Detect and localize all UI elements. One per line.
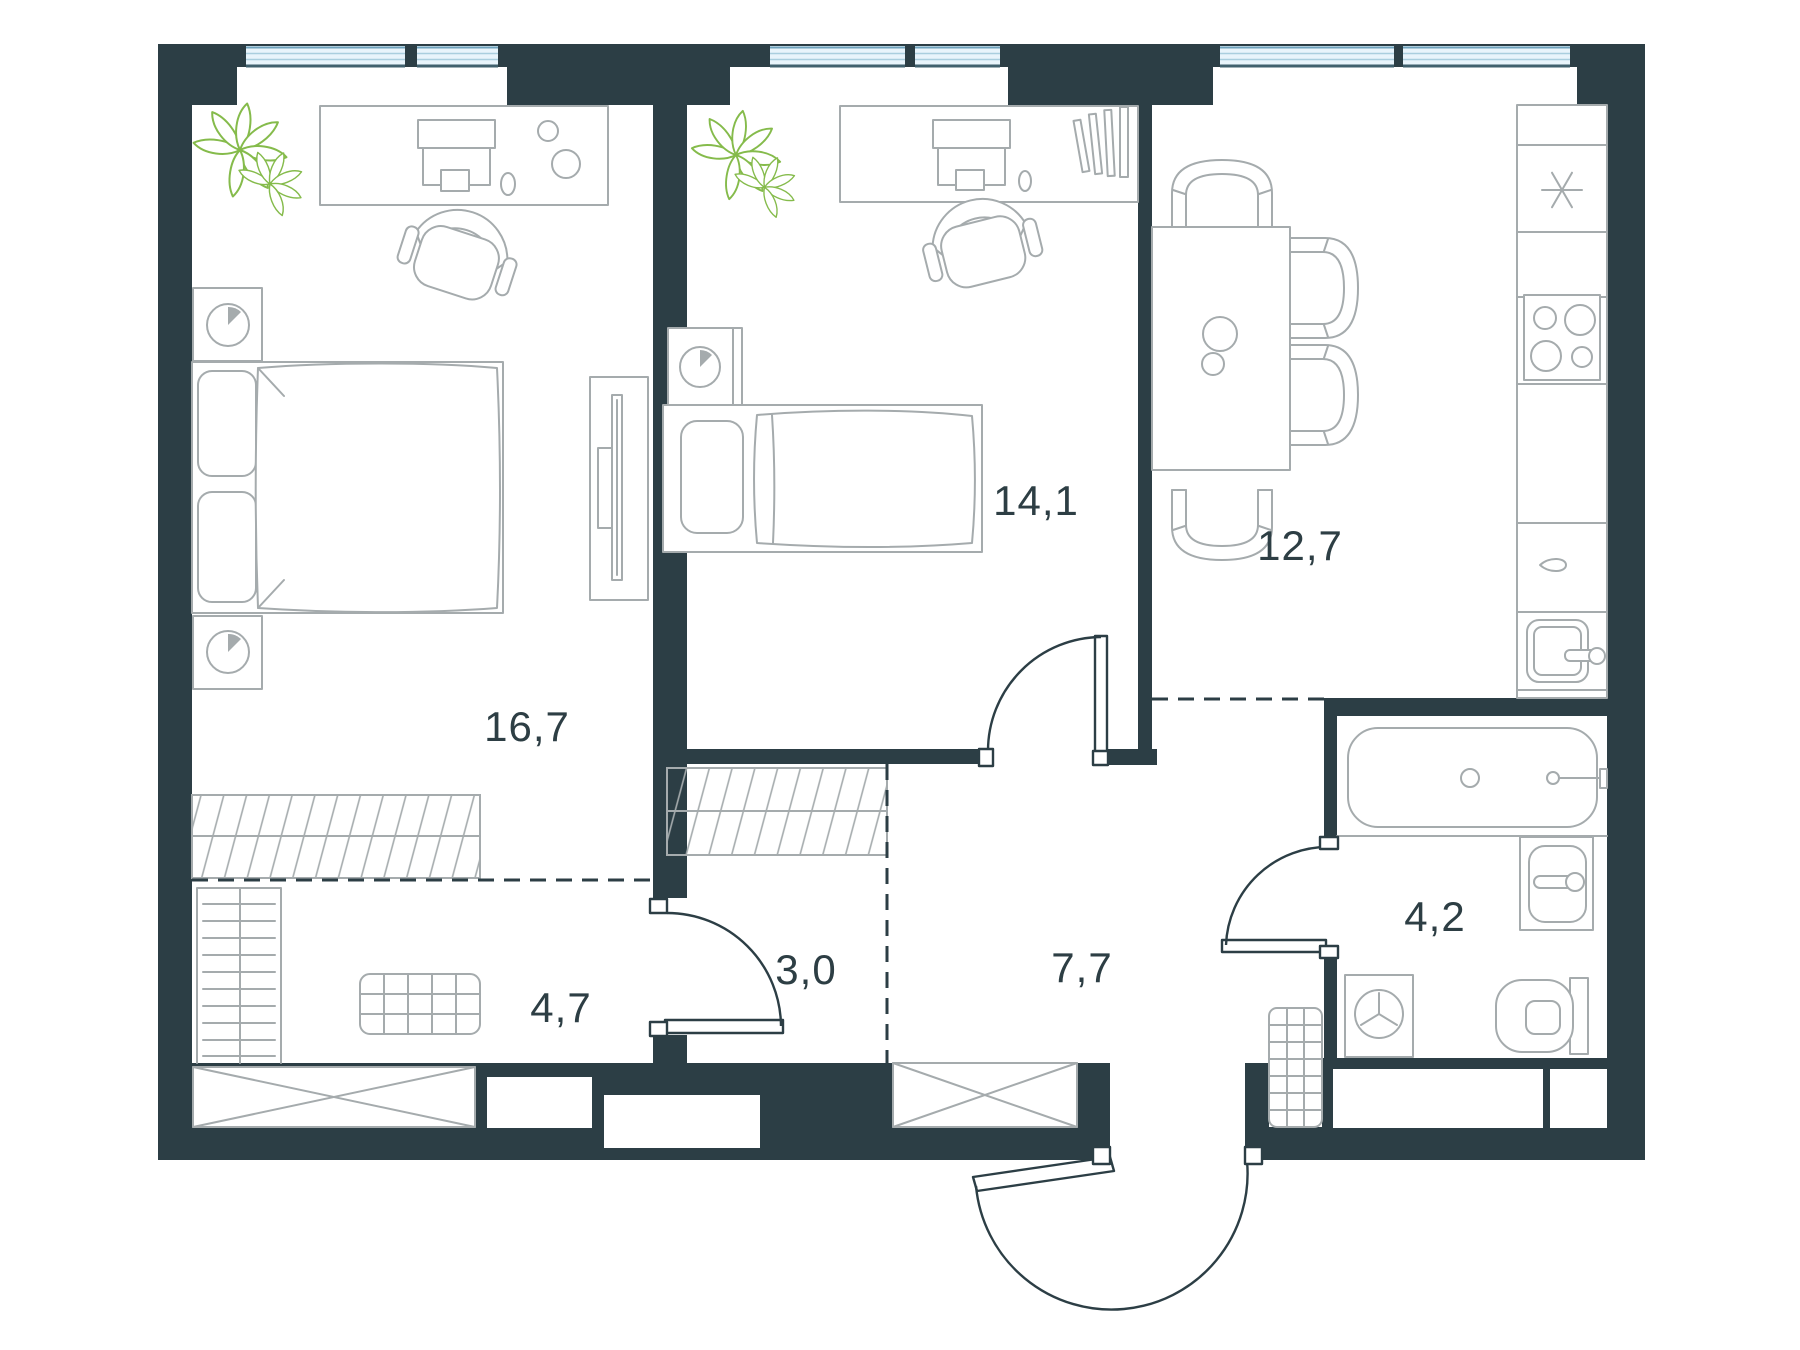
wall-bathroom-left-upper xyxy=(1324,716,1337,848)
stove-burners xyxy=(1524,295,1600,380)
wardrobe-zone-door xyxy=(650,899,783,1036)
area-label-hallway: 7,7 xyxy=(1051,944,1112,991)
monitor xyxy=(418,120,495,148)
niche-bottom-1 xyxy=(487,1077,592,1128)
door-jamb xyxy=(650,899,667,913)
area-label-bedroom-large: 16,7 xyxy=(484,703,570,750)
wall-corridor-stub xyxy=(653,1035,687,1063)
window-recess-kitchen xyxy=(1213,67,1577,105)
window-5 xyxy=(1220,46,1394,67)
window-6 xyxy=(1403,46,1570,67)
sink-tap xyxy=(1589,648,1605,664)
kitchen-counter xyxy=(1517,105,1607,698)
kitchen-furniture xyxy=(1152,105,1607,698)
niche-bathroom-bottom-2 xyxy=(1550,1069,1607,1128)
window-2 xyxy=(417,46,498,67)
bedroom-large-furniture xyxy=(192,102,648,878)
door-jamb xyxy=(1093,751,1108,765)
door-jamb xyxy=(1245,1147,1262,1164)
door-swing-arc xyxy=(667,913,781,1026)
bathroom-door xyxy=(1222,837,1338,958)
window-1 xyxy=(246,46,405,67)
area-label-bathroom: 4,2 xyxy=(1404,893,1465,940)
monitor xyxy=(933,120,1010,148)
door-swing-arc xyxy=(988,637,1101,751)
pillow xyxy=(198,492,256,602)
wall-bedroom2-bottom xyxy=(653,749,987,764)
wall-kitchen-partition xyxy=(1138,105,1152,765)
ladder-shelf xyxy=(197,888,281,1063)
pillow xyxy=(198,371,256,476)
basin-tap xyxy=(1566,873,1584,891)
toilet xyxy=(1496,978,1588,1054)
monitor-stand xyxy=(441,170,469,191)
wardrobe-zone-furniture xyxy=(193,888,480,1127)
mouse xyxy=(501,173,515,195)
toilet-inner xyxy=(1526,1001,1560,1034)
wall-under-shoe-cabinet xyxy=(1269,1127,1322,1160)
door-jamb xyxy=(979,749,993,766)
bedroom-small-door xyxy=(979,636,1108,766)
entrance-door xyxy=(973,1147,1262,1310)
area-label-bedroom-small: 14,1 xyxy=(993,477,1079,524)
tub-drain xyxy=(1461,769,1479,787)
tub-tap xyxy=(1547,772,1559,784)
table-decor xyxy=(1203,317,1237,351)
window-recess-bedroom-large xyxy=(237,67,507,105)
door-jamb xyxy=(1320,946,1338,958)
table-decor xyxy=(1202,353,1224,375)
door-swing-arc xyxy=(1226,847,1330,945)
wall-bathroom-top xyxy=(1324,698,1607,716)
storage-crossed-box xyxy=(193,1067,475,1127)
floor-plan-canvas: 16,7 14,1 12,7 4,7 3,0 7,7 4,2 xyxy=(0,0,1800,1350)
entry-wardrobe-crossed-box xyxy=(893,1063,1077,1127)
window-3 xyxy=(770,46,905,67)
area-label-wardrobe-zone: 4,7 xyxy=(530,984,591,1031)
grid-table xyxy=(360,974,480,1034)
pillow xyxy=(681,421,743,533)
blanket xyxy=(754,411,975,548)
door-jamb xyxy=(650,1022,667,1036)
washbasin xyxy=(1520,837,1593,930)
window-4 xyxy=(915,46,1000,67)
monitor-stand xyxy=(956,170,984,190)
wall-left xyxy=(158,105,192,1160)
area-label-corridor: 3,0 xyxy=(775,946,836,993)
shoe-cabinet-grid xyxy=(1269,1008,1322,1127)
door-leaf xyxy=(665,1020,783,1033)
area-label-kitchen-living: 12,7 xyxy=(1257,522,1343,569)
wall-right xyxy=(1607,105,1645,1160)
washing-machine-icon xyxy=(1345,975,1413,1057)
tub-wall-plate xyxy=(1600,769,1607,788)
bathroom-fixtures xyxy=(1337,728,1607,1057)
wall-entry-jamb-right xyxy=(1245,1063,1269,1160)
blanket xyxy=(256,364,500,613)
floor-plan-page: 16,7 14,1 12,7 4,7 3,0 7,7 4,2 xyxy=(0,0,1800,1350)
door-jamb xyxy=(1320,837,1338,849)
door-leaf xyxy=(1222,940,1326,952)
desk-cup xyxy=(538,121,558,141)
bathtub xyxy=(1337,728,1607,836)
doors xyxy=(650,636,1338,1310)
desk-bowl xyxy=(552,150,580,178)
mouse xyxy=(1019,171,1031,191)
door-leaf xyxy=(1095,636,1107,752)
niche-bottom-2 xyxy=(604,1095,760,1148)
niche-bathroom-bottom-1 xyxy=(1333,1069,1543,1128)
window-recess-bedroom-small xyxy=(730,67,1008,105)
door-jamb xyxy=(1093,1147,1110,1164)
wall-bathroom-left-lower xyxy=(1324,947,1337,1063)
media-box xyxy=(598,448,612,528)
wall-entry-jamb-left xyxy=(1077,1063,1110,1160)
